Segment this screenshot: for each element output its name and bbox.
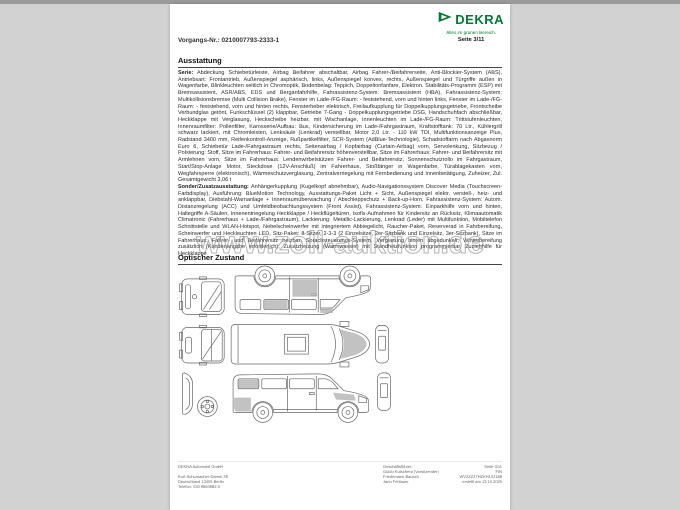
- series-lead: Serie:: [178, 70, 193, 76]
- section-divider: [178, 67, 502, 68]
- dekra-tagline: Alles im grünen Bereich.: [438, 30, 504, 35]
- footer-management: Geschäftsführer: Guido Kutschera (Vorsit…: [383, 465, 458, 490]
- optical-condition-section: Optischer Zustand: [178, 253, 502, 265]
- page-number-label: Seite 3/11: [438, 37, 504, 43]
- section-title-optischer-zustand: Optischer Zustand: [178, 253, 502, 262]
- footer-company-address: DEKRA Automobil GmbH Kurt-Schumacher-Dam…: [178, 465, 383, 490]
- series-equipment-paragraph: Serie: Abdeckung Schiebetürleiste, Airba…: [178, 70, 502, 184]
- dekra-arrow-icon: [438, 10, 453, 29]
- optional-text: Anhängerkupplung (Kugelkopf abnehmbar), …: [178, 184, 502, 257]
- series-text: Abdeckung Schiebetürleiste, Airbag Beifa…: [178, 70, 502, 183]
- case-number: Vorgangs-Nr.: 0210007793-2333-1: [178, 37, 279, 44]
- document-page: Vorgangs-Nr.: 0210007793-2333-1 DEKRA Al…: [170, 4, 510, 510]
- optional-equipment-paragraph: Sonder/Zusatzausstattung: Anhängerkupplu…: [178, 184, 502, 258]
- vehicle-condition-diagrams: [172, 265, 508, 459]
- footer-meta: Seite 3/11 FIN WV2ZZZ7HZKH102188 erstell…: [458, 465, 502, 490]
- optional-lead: Sonder/Zusatzausstattung:: [178, 184, 249, 190]
- dekra-logo-block: DEKRA Alles im grünen Bereich. Seite 3/1…: [438, 10, 504, 43]
- section-title-ausstattung: Ausstattung: [178, 56, 502, 65]
- page-footer: DEKRA Automobil GmbH Kurt-Schumacher-Dam…: [178, 461, 502, 490]
- dekra-wordmark: DEKRA: [455, 13, 504, 26]
- equipment-section: Ausstattung Serie: Abdeckung Schiebetürl…: [178, 56, 502, 258]
